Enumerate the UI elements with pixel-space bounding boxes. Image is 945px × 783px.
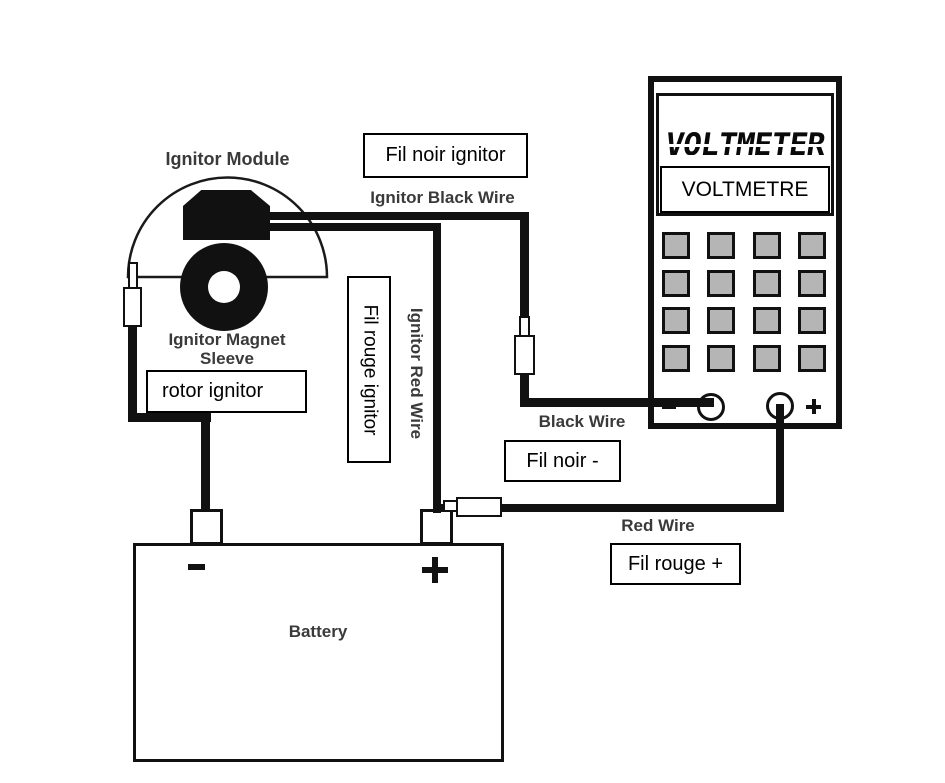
red-wire-vertical-to-terminal bbox=[776, 404, 784, 510]
voltmeter-keypad bbox=[662, 232, 826, 372]
black-wire-to-voltmeter bbox=[520, 398, 714, 407]
ignitor-red-wire-horizontal bbox=[263, 223, 441, 231]
ignitor-black-wire-horizontal bbox=[263, 212, 529, 220]
black-wire-connector bbox=[514, 335, 535, 375]
fil-noir-label-box: Fil noir - bbox=[504, 440, 621, 482]
voltmeter-key bbox=[753, 232, 781, 259]
rotor-wire-vertical-lower bbox=[201, 413, 210, 512]
battery-label: Battery bbox=[248, 622, 388, 641]
voltmeter-key bbox=[662, 232, 690, 259]
voltmeter-key bbox=[798, 232, 826, 259]
voltmeter-key bbox=[662, 270, 690, 297]
lcd-segment-gap bbox=[662, 155, 828, 158]
battery-negative-terminal bbox=[190, 509, 223, 545]
ignitor-black-wire-vertical bbox=[520, 212, 529, 322]
ignitor-black-wire-label: Ignitor Black Wire bbox=[360, 188, 525, 207]
magnet-label-line1: Ignitor Magnet bbox=[168, 330, 285, 349]
voltmeter-key bbox=[707, 307, 735, 334]
voltmeter-plus-sign bbox=[806, 399, 821, 414]
voltmeter-key bbox=[753, 307, 781, 334]
voltmeter-key bbox=[798, 270, 826, 297]
rotor-ignitor-label-box: rotor ignitor bbox=[146, 370, 307, 413]
rotor-wire-vertical-upper bbox=[128, 325, 137, 420]
lcd-segment-gap bbox=[662, 144, 828, 147]
black-wire-label: Black Wire bbox=[528, 412, 636, 431]
magnet-label-line2: Sleeve bbox=[200, 349, 254, 368]
red-wire-connector bbox=[456, 497, 502, 517]
voltmeter-key bbox=[662, 345, 690, 372]
battery-minus-sign bbox=[188, 564, 205, 570]
voltmeter-key bbox=[753, 270, 781, 297]
battery-plus-sign bbox=[422, 557, 448, 583]
voltmeter-key bbox=[798, 345, 826, 372]
fil-noir-ignitor-label-box: Fil noir ignitor bbox=[363, 133, 528, 178]
voltmeter-key bbox=[707, 270, 735, 297]
voltmetre-label-box: VOLTMETRE bbox=[660, 166, 830, 213]
voltmeter-key bbox=[707, 232, 735, 259]
voltmeter-key bbox=[707, 345, 735, 372]
battery-positive-terminal bbox=[420, 509, 453, 545]
ignitor-red-wire-label: Ignitor Red Wire bbox=[398, 298, 436, 448]
battery-box bbox=[133, 543, 504, 762]
module-left-connector bbox=[123, 287, 142, 327]
fil-rouge-label-box: Fil rouge + bbox=[610, 543, 741, 585]
rotor-wire-jog bbox=[128, 413, 211, 422]
voltmeter-key bbox=[662, 307, 690, 334]
ignitor-module-body bbox=[183, 190, 270, 240]
magnet-ring-hole bbox=[208, 271, 240, 303]
fil-rouge-ignitor-label-box: Fil rouge ignitor bbox=[347, 276, 391, 463]
ignitor-module-label: Ignitor Module bbox=[140, 150, 315, 169]
module-left-pin bbox=[128, 262, 138, 290]
ignitor-magnet-sleeve-label: Ignitor Magnet Sleeve bbox=[152, 330, 302, 368]
voltmeter-key bbox=[753, 345, 781, 372]
ignitor-red-wire-text: Ignitor Red Wire bbox=[408, 307, 427, 438]
red-wire-label: Red Wire bbox=[612, 516, 704, 535]
fil-rouge-ignitor-text: Fil rouge ignitor bbox=[358, 304, 380, 435]
voltmeter-key bbox=[798, 307, 826, 334]
ignitor-magnet-sleeve-ring bbox=[180, 243, 268, 331]
wiring-diagram: Battery VOLTMETER VOLTMETRE Ignitor Modu… bbox=[0, 0, 945, 783]
